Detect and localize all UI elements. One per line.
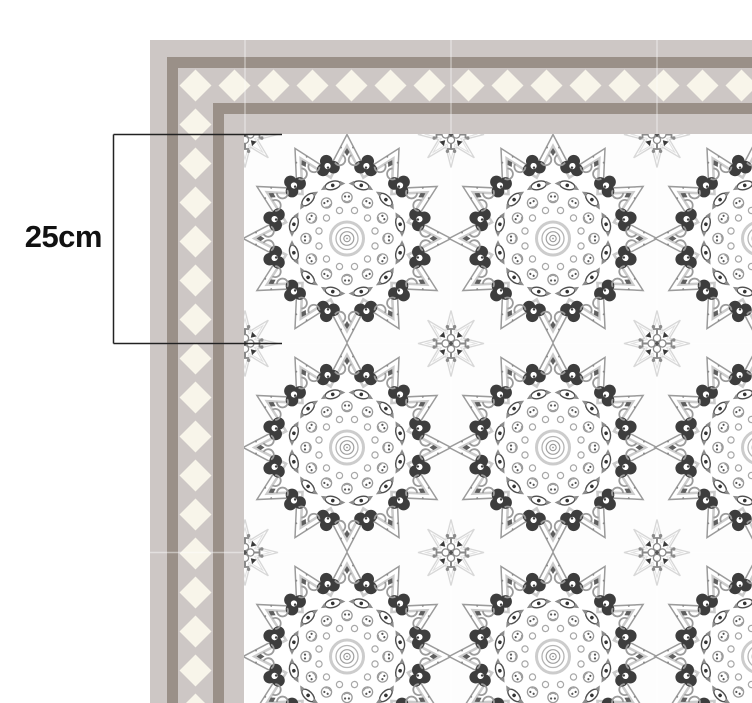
corner-medallion bbox=[624, 311, 690, 377]
dimension-label: 25cm bbox=[12, 219, 102, 255]
corner-medallion bbox=[418, 311, 484, 377]
corner-medallion bbox=[418, 520, 484, 586]
corner-medallion bbox=[624, 520, 690, 586]
rug-dimension-diagram: 25cm bbox=[0, 0, 752, 703]
rug-preview bbox=[0, 0, 752, 703]
